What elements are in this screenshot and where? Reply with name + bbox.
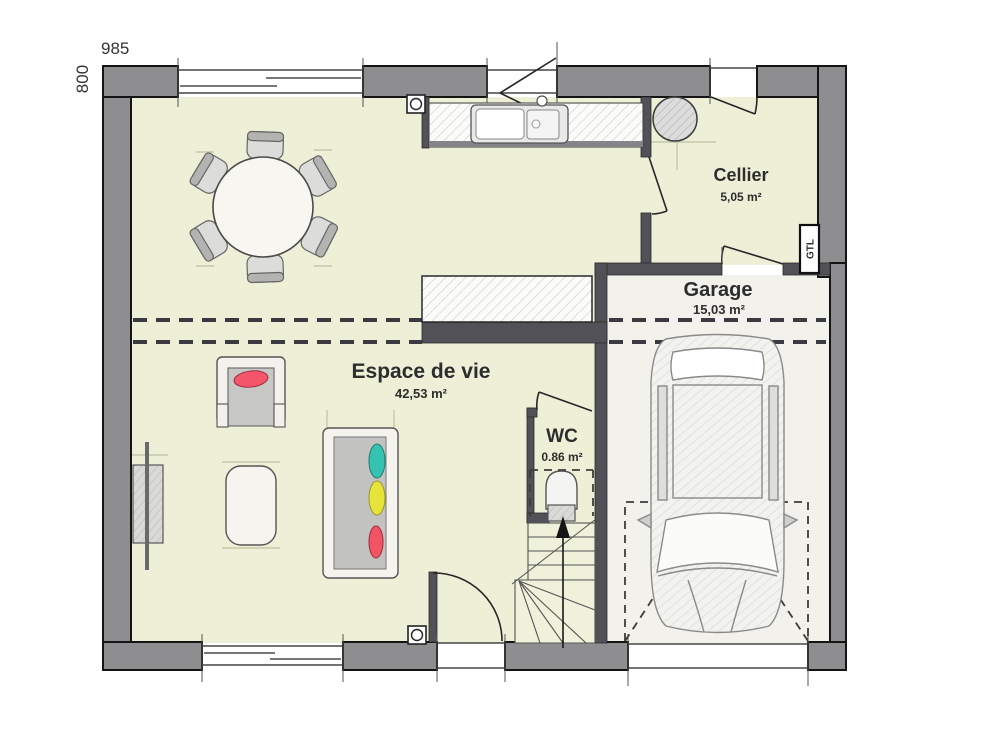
car-side-left bbox=[658, 386, 667, 500]
floor-plan-page: GTL bbox=[0, 0, 1000, 734]
garage-top-wall-left bbox=[595, 263, 722, 275]
wall-top-1 bbox=[103, 66, 178, 97]
room-label-wc: WC bbox=[546, 426, 578, 447]
door-leaf bbox=[429, 572, 437, 642]
stair-winder bbox=[515, 580, 595, 643]
wall-left bbox=[103, 66, 131, 670]
sofa-cushion-yellow bbox=[369, 481, 385, 515]
electrical-symbol-kitchen bbox=[407, 95, 425, 113]
electrical-symbol-living bbox=[408, 626, 426, 644]
wall-top-3 bbox=[557, 66, 710, 97]
island-wall bbox=[422, 322, 607, 343]
coffee-table bbox=[226, 466, 276, 545]
room-label-cellier: Cellier bbox=[713, 165, 768, 185]
tv-screen bbox=[145, 442, 149, 570]
partition-kitchen-cellier-lower bbox=[641, 213, 651, 265]
wall-bottom-4 bbox=[808, 642, 846, 670]
car-roof bbox=[673, 385, 762, 498]
water-heater bbox=[653, 97, 697, 141]
toilet-bowl bbox=[546, 471, 577, 509]
wall-right-upper bbox=[818, 66, 846, 277]
sofa-cushion-teal bbox=[369, 444, 385, 478]
sofa bbox=[323, 428, 398, 578]
room-label-garage: Garage bbox=[684, 279, 753, 301]
gtl-box: GTL bbox=[800, 225, 819, 273]
wall-top-2 bbox=[363, 66, 487, 97]
faucet bbox=[537, 96, 547, 106]
sofa-cushion-red bbox=[369, 526, 383, 558]
wall-bottom-3 bbox=[505, 642, 628, 670]
car-side-right bbox=[769, 386, 778, 500]
kitchen-island-counter bbox=[422, 276, 592, 322]
gtl-label: GTL bbox=[806, 239, 817, 259]
wc-top-stub bbox=[527, 408, 537, 417]
floor-plan-drawing: GTL bbox=[0, 0, 1000, 734]
room-area-cellier: 5,05 m² bbox=[720, 190, 761, 204]
room-label-espace-de-vie: Espace de vie bbox=[352, 360, 491, 383]
room-area-espace-de-vie: 42,53 m² bbox=[395, 386, 448, 401]
car bbox=[638, 335, 797, 633]
garage-left-wall bbox=[595, 263, 607, 643]
car-rear-window bbox=[671, 348, 764, 380]
toilet-tank bbox=[548, 505, 575, 521]
car-windshield bbox=[657, 513, 778, 572]
wall-bottom-2 bbox=[343, 642, 437, 670]
room-area-garage: 15,03 m² bbox=[693, 302, 746, 317]
dining-table bbox=[213, 157, 313, 257]
wall-right-lower bbox=[830, 263, 846, 670]
sink-drain bbox=[532, 120, 540, 128]
dimension-width: 985 bbox=[101, 39, 129, 58]
wall-bottom-1 bbox=[103, 642, 202, 670]
armchair bbox=[217, 357, 285, 427]
room-area-wc: 0.86 m² bbox=[541, 450, 582, 464]
dimension-height: 800 bbox=[73, 65, 92, 93]
